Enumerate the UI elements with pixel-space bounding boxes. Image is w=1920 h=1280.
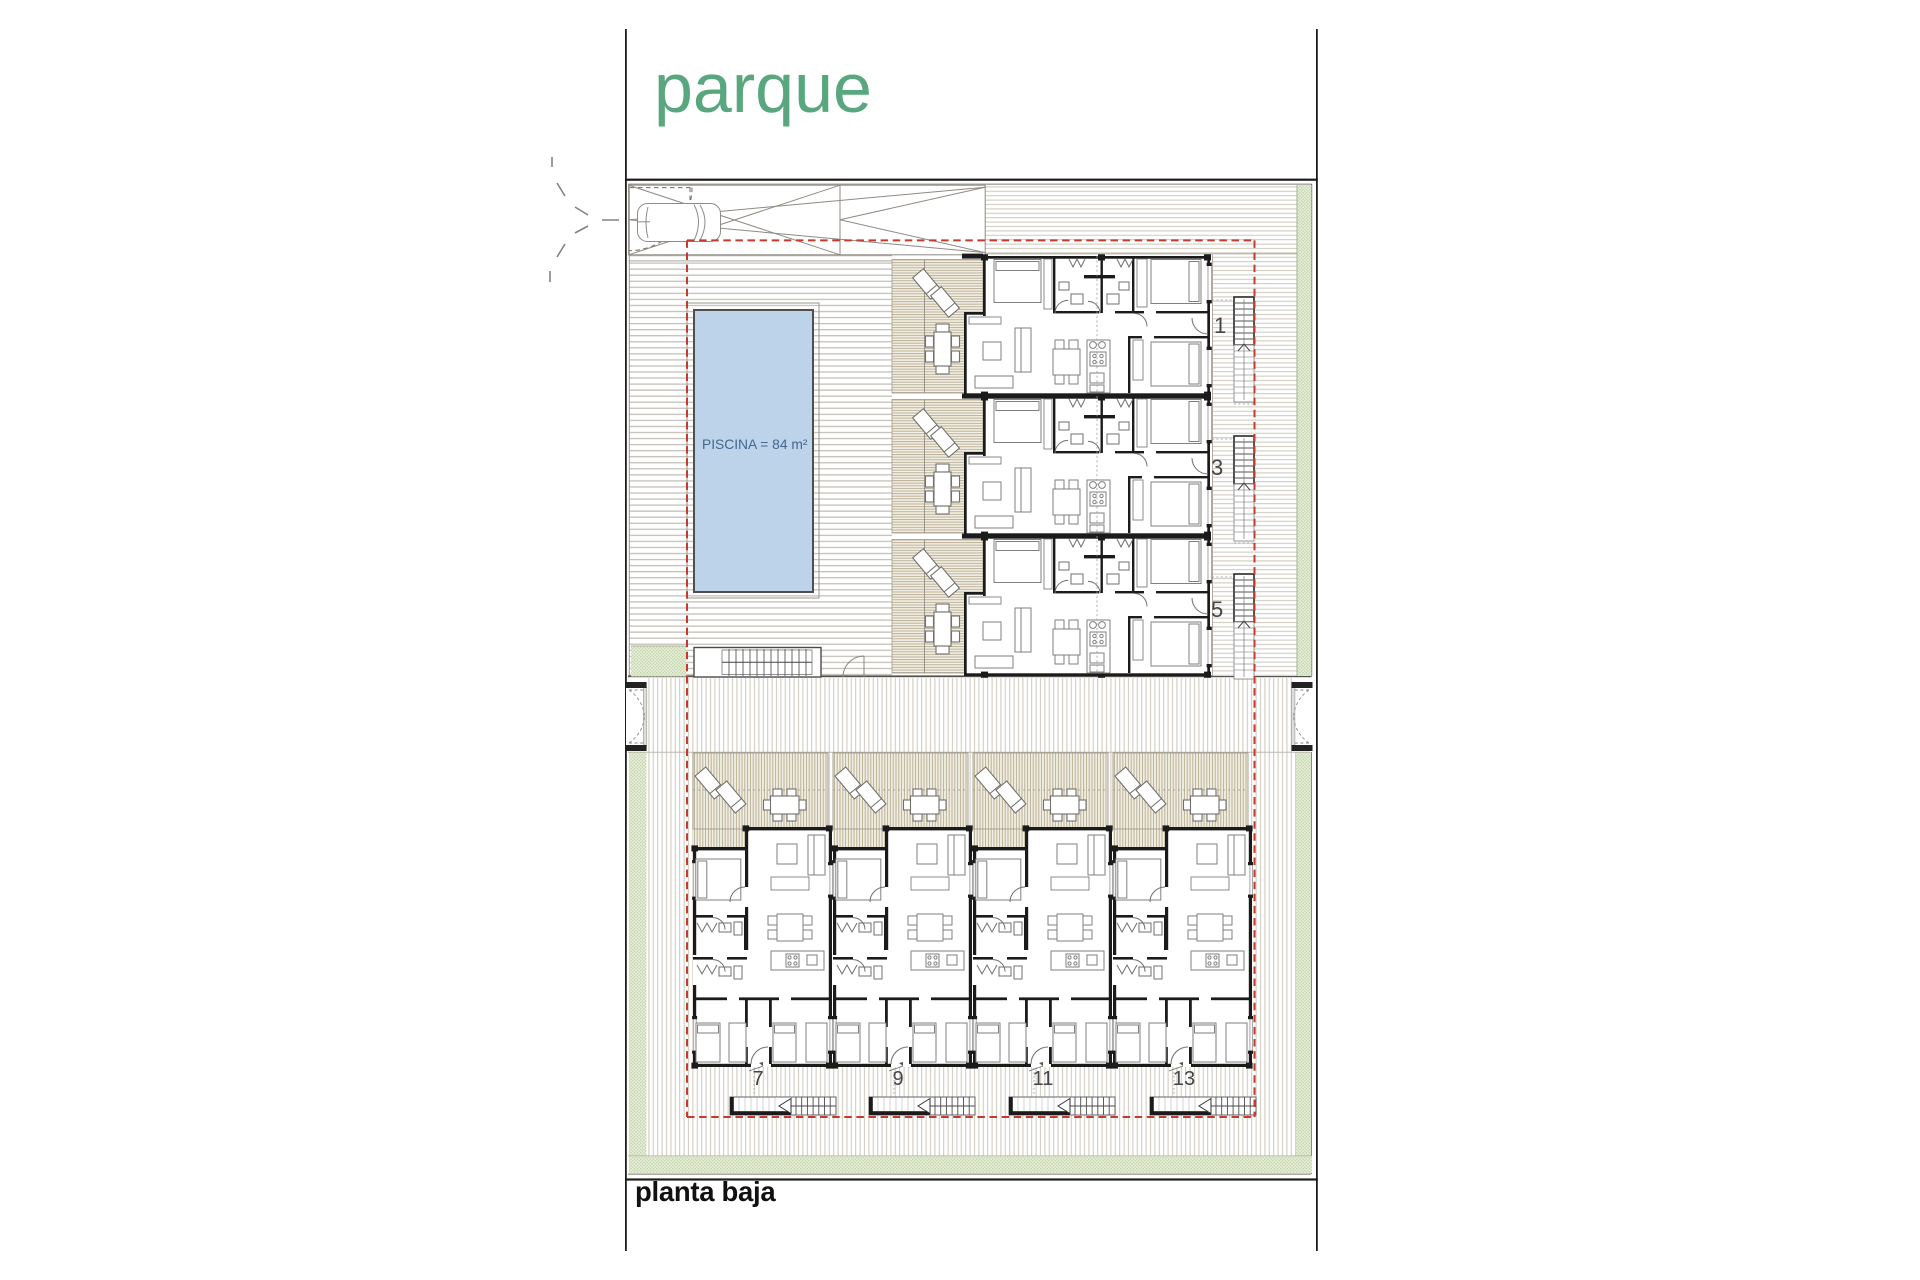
svg-text:parque: parque <box>654 49 872 127</box>
svg-text:3: 3 <box>1211 455 1223 480</box>
svg-text:1: 1 <box>1214 313 1226 338</box>
svg-text:7: 7 <box>752 1068 763 1090</box>
svg-text:13: 13 <box>1173 1068 1195 1090</box>
svg-text:5: 5 <box>1211 597 1223 622</box>
svg-text:9: 9 <box>892 1068 903 1090</box>
svg-text:11: 11 <box>1033 1068 1054 1090</box>
svg-text:planta baja: planta baja <box>635 1176 776 1207</box>
svg-text:PISCINA = 84 m²: PISCINA = 84 m² <box>702 437 808 452</box>
